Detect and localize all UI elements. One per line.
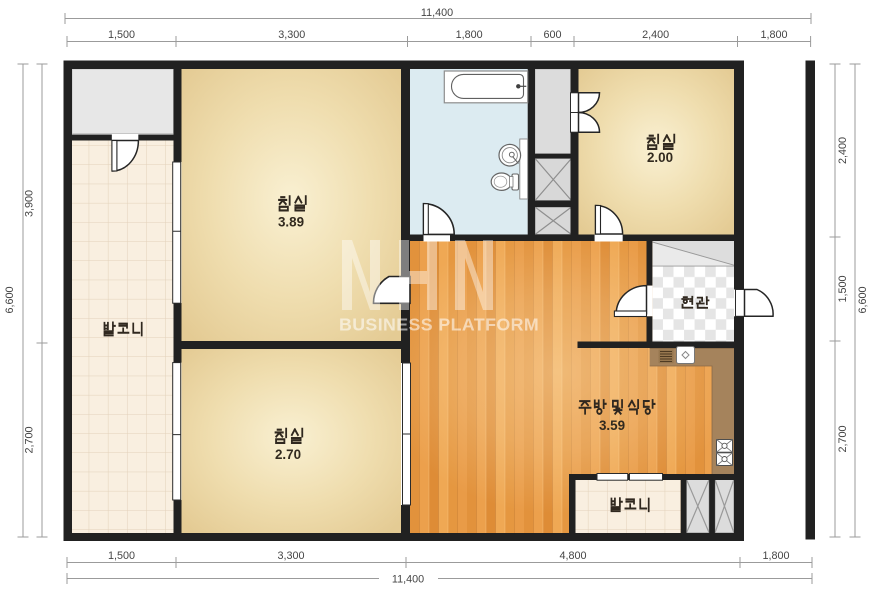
svg-text:1,800: 1,800 (760, 29, 787, 41)
svg-text:11,400: 11,400 (392, 574, 424, 586)
svg-text:1,500: 1,500 (108, 29, 135, 41)
svg-text:6,600: 6,600 (857, 286, 869, 313)
svg-text:BUSINESS PLATFORM: BUSINESS PLATFORM (339, 315, 539, 335)
svg-text:1,800: 1,800 (456, 29, 483, 41)
svg-text:2,400: 2,400 (837, 137, 849, 164)
svg-text:1,800: 1,800 (762, 550, 789, 562)
svg-text:3,300: 3,300 (277, 550, 304, 562)
svg-text:600: 600 (543, 29, 561, 41)
svg-text:2,700: 2,700 (837, 425, 849, 452)
svg-text:2,400: 2,400 (642, 29, 669, 41)
svg-text:6,600: 6,600 (4, 286, 16, 313)
svg-text:3,900: 3,900 (24, 190, 36, 217)
svg-text:2.70: 2.70 (275, 447, 301, 462)
svg-text:3.89: 3.89 (278, 215, 304, 230)
svg-text:3.59: 3.59 (599, 418, 625, 433)
svg-text:2.00: 2.00 (647, 150, 673, 165)
svg-text:1,500: 1,500 (837, 275, 849, 302)
svg-text:4,800: 4,800 (559, 550, 586, 562)
svg-text:1,500: 1,500 (108, 550, 135, 562)
svg-text:3,300: 3,300 (278, 29, 305, 41)
svg-text:11,400: 11,400 (421, 7, 453, 19)
svg-text:2,700: 2,700 (24, 426, 36, 453)
